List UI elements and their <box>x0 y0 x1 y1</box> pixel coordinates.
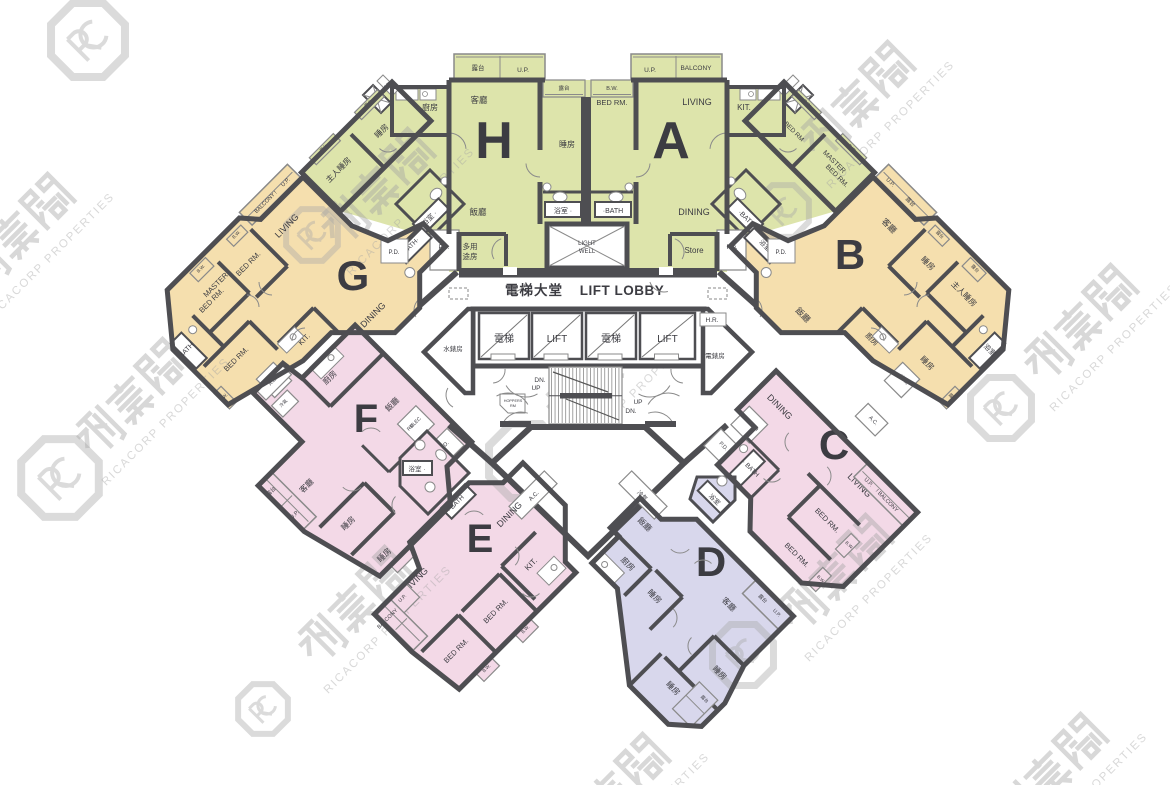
svg-text:UP: UP <box>633 399 642 406</box>
svg-text:WELL: WELL <box>579 249 596 255</box>
svg-text:Store: Store <box>684 246 704 255</box>
svg-text:·BATH: ·BATH <box>603 208 623 215</box>
svg-text:LIFT: LIFT <box>547 334 568 345</box>
svg-text:電錶房: 電錶房 <box>705 351 725 360</box>
svg-text:B: B <box>835 231 865 278</box>
svg-text:水錶房: 水錶房 <box>443 344 463 353</box>
svg-text:電梯: 電梯 <box>494 332 514 345</box>
svg-text:DINING: DINING <box>678 207 710 217</box>
svg-text:電梯大堂: 電梯大堂 <box>505 282 563 298</box>
svg-text:H: H <box>475 112 513 170</box>
svg-text:睡房: 睡房 <box>559 139 575 149</box>
svg-text:LIGHT: LIGHT <box>578 241 596 247</box>
svg-text:DN.: DN. <box>625 408 636 415</box>
svg-text:露台: 露台 <box>558 84 570 92</box>
svg-text:電梯: 電梯 <box>601 332 621 345</box>
svg-text:UP: UP <box>531 385 540 392</box>
svg-text:多用: 多用 <box>463 241 478 251</box>
svg-text:浴室 ·: 浴室 · <box>409 464 426 473</box>
svg-text:KIT.: KIT. <box>737 103 751 112</box>
svg-text:浴室 ·: 浴室 · <box>554 206 572 215</box>
svg-text:A: A <box>652 112 690 170</box>
svg-text:H.R.: H.R. <box>706 317 719 324</box>
svg-text:B.W.: B.W. <box>606 86 618 92</box>
svg-text:DN.: DN. <box>534 377 545 384</box>
svg-text:F: F <box>354 397 378 441</box>
svg-text:P.D.: P.D. <box>389 250 400 256</box>
svg-text:U.P.: U.P. <box>644 67 656 74</box>
svg-text:LIFT: LIFT <box>657 334 678 345</box>
svg-text:RM: RM <box>510 404 516 408</box>
svg-text:廚房: 廚房 <box>422 102 438 112</box>
svg-text:BALCONY: BALCONY <box>680 65 712 72</box>
svg-text:客廳: 客廳 <box>470 95 488 105</box>
svg-text:HOPPERS: HOPPERS <box>504 399 523 403</box>
svg-text:U.P.: U.P. <box>517 67 529 74</box>
svg-text:LIVING: LIVING <box>682 97 712 107</box>
svg-text:途房: 途房 <box>463 251 478 261</box>
svg-text:P.D.: P.D. <box>776 250 787 256</box>
svg-text:飯廳: 飯廳 <box>469 207 487 217</box>
svg-text:G: G <box>337 252 370 299</box>
svg-text:BED RM.: BED RM. <box>596 98 627 107</box>
svg-text:露台: 露台 <box>472 63 485 72</box>
svg-text:E: E <box>467 517 494 561</box>
